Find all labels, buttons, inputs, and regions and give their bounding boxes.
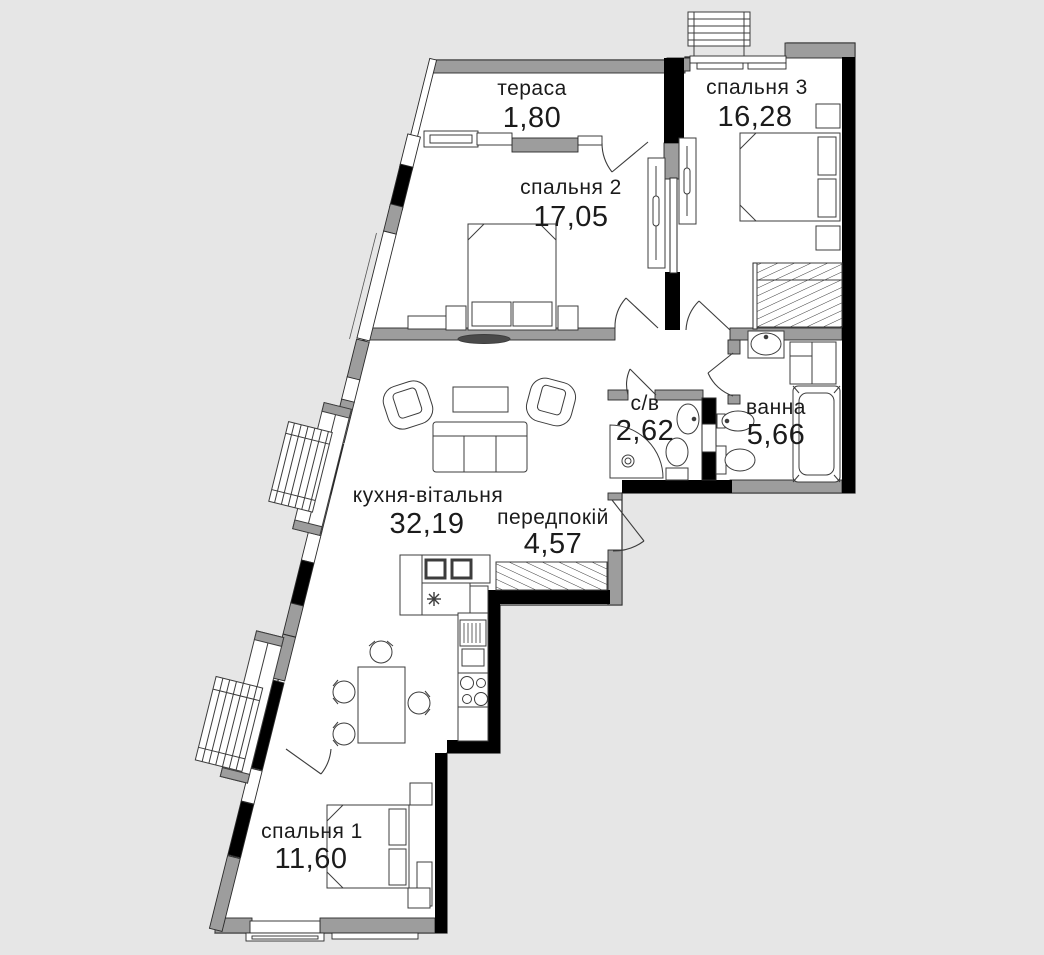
fridge (470, 586, 488, 613)
nightstand (816, 104, 840, 128)
bath-cabinet (790, 342, 836, 384)
floor-plan-page: тераса 1,80 спальня 3 16,28 спальня 2 17… (0, 0, 1044, 955)
terrace-bottom-wall (512, 138, 578, 152)
room-label-terrace-name: тераса (497, 77, 567, 100)
nightstand (446, 306, 466, 330)
toilet (666, 468, 688, 480)
bedroom1-window (250, 921, 320, 933)
pillow (818, 179, 836, 217)
terrace-window (578, 136, 602, 145)
bedroom3-window (690, 56, 786, 63)
kitchen-right-wall (488, 603, 500, 753)
terrace-right-wall (664, 58, 684, 143)
kitchen-counter (400, 555, 422, 615)
nightstand (408, 888, 430, 908)
chair (369, 641, 393, 663)
room-label-kitchen-area: 32,19 (389, 508, 464, 540)
sofa (433, 422, 527, 472)
nightstand (558, 306, 578, 330)
right-wall (842, 57, 855, 493)
dining-table (358, 667, 405, 743)
chair (333, 722, 355, 746)
floor-plan-svg: тераса 1,80 спальня 3 16,28 спальня 2 17… (0, 0, 1044, 955)
hallway-bottom-wall (488, 590, 610, 604)
pillow (818, 137, 836, 175)
kitchen-hood (426, 560, 445, 578)
room-label-bedroom3-area: 16,28 (717, 101, 792, 133)
room-label-bedroom1-name: спальня 1 (261, 820, 363, 843)
room-label-hallway-name: передпокій (497, 506, 609, 529)
room-label-wc-area: 2,62 (616, 415, 674, 447)
room-label-bedroom3-name: спальня 3 (706, 76, 808, 99)
nightstand (816, 226, 840, 250)
pillow (513, 302, 552, 326)
pillow (389, 849, 406, 885)
room-label-bath-area: 5,66 (747, 419, 805, 451)
bedroom3-top-wall (785, 43, 855, 58)
wc-top-wall (608, 390, 628, 400)
pillow (389, 809, 406, 845)
wardrobe (757, 263, 842, 327)
terrace-top-wall (433, 60, 685, 73)
chair (333, 680, 355, 704)
sink (427, 592, 441, 606)
bedroom-divider-thin (670, 178, 677, 273)
bedroom1-right-wall (435, 753, 447, 933)
coffee-table (453, 387, 508, 412)
nightstand (410, 783, 432, 805)
pillow (472, 302, 511, 326)
doormat (458, 335, 510, 344)
wardrobe-side-wall (753, 263, 757, 329)
chair (408, 691, 430, 715)
wardrobe (496, 562, 607, 590)
room-label-hallway-area: 4,57 (524, 528, 582, 560)
room-label-bedroom1-area: 11,60 (275, 843, 348, 875)
room-label-terrace-area: 1,80 (503, 102, 561, 134)
entrance-side-wall (608, 550, 622, 605)
dresser (408, 316, 446, 329)
room-label-wc-name: с/в (631, 392, 660, 415)
room-label-bath-name: ванна (746, 396, 806, 419)
bedroom3-bottom-wall (730, 328, 842, 340)
room-label-kitchen-name: кухня-вітальня (353, 484, 503, 507)
room-label-bedroom2-area: 17,05 (533, 201, 608, 233)
room-label-bedroom2-name: спальня 2 (520, 176, 622, 199)
hallway-furniture (496, 562, 607, 590)
